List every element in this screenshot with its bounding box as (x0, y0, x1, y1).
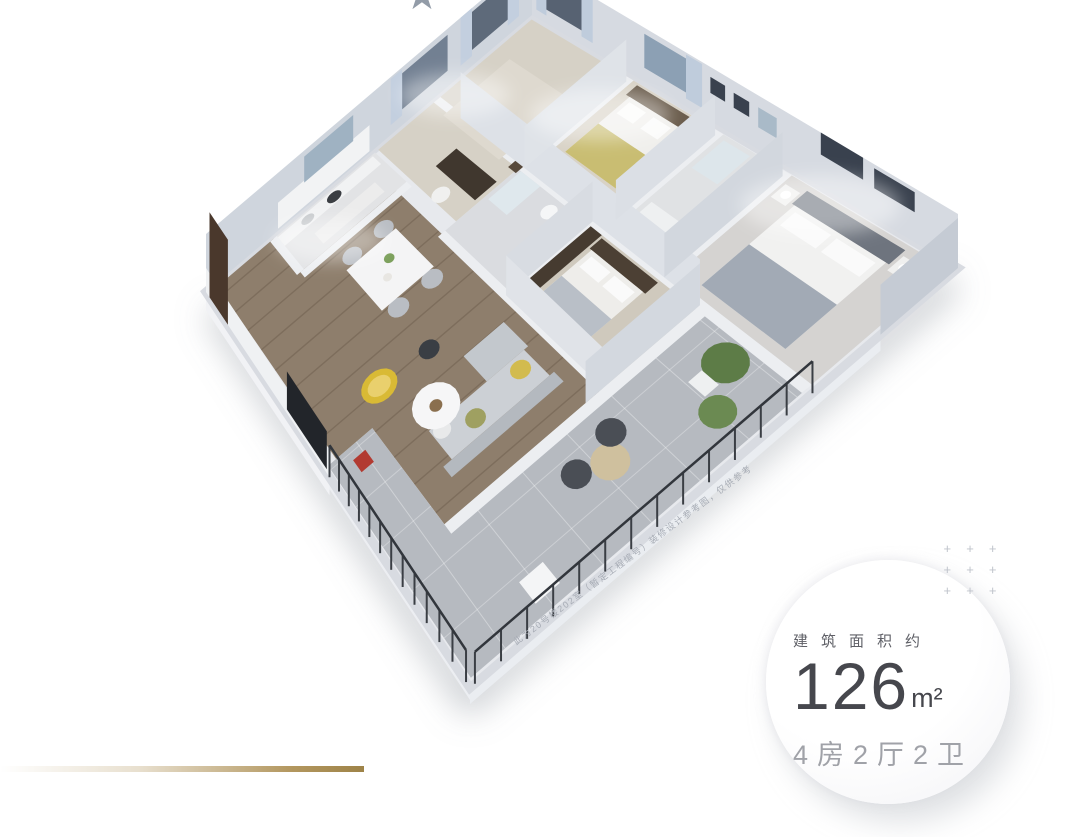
plus-icon: + (966, 584, 974, 597)
plus-icon: + (989, 542, 997, 555)
gold-accent-line (0, 766, 364, 772)
plus-icon: + (944, 584, 952, 597)
plus-icon: + (989, 563, 997, 576)
plus-icon: + (944, 542, 952, 555)
area-value: 126 (793, 653, 909, 719)
poster-canvas: { "decor": { "star_char": "★", "plus_cha… (0, 0, 1080, 837)
plus-icon: + (966, 542, 974, 555)
plus-icon: + (989, 584, 997, 597)
plus-grid-decoration: + + + + + + + + + (936, 542, 1004, 597)
area-unit: m² (911, 683, 942, 714)
area-label: 建筑面积约 (793, 630, 1010, 651)
area-value-row: 126 m² (793, 653, 1010, 719)
layout-text: 4房2厅2卫 (793, 733, 1010, 772)
plus-icon: + (966, 563, 974, 576)
plus-icon: + (944, 563, 952, 576)
